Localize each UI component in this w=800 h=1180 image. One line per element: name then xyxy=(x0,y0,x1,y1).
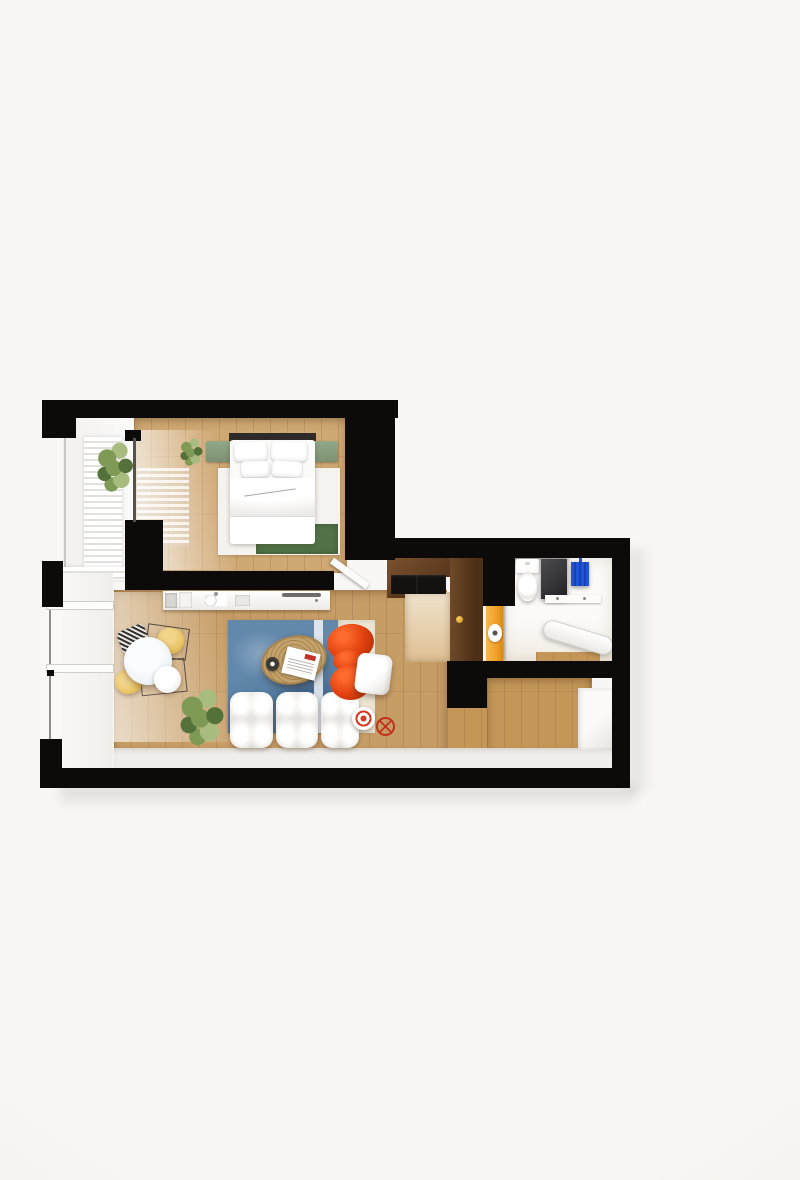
toilet-flush-button xyxy=(525,562,530,565)
wall-left-mid-block xyxy=(42,561,63,607)
shower-panel xyxy=(541,559,567,599)
wall-bottom xyxy=(54,768,630,788)
balcony-glass-line xyxy=(64,418,66,567)
scene-background xyxy=(0,0,800,1180)
hallway-closet xyxy=(578,688,612,750)
bed-foot-section xyxy=(230,516,315,544)
bedroom-door-leaf xyxy=(330,558,370,590)
wall-upper-right xyxy=(393,538,630,558)
blue-towel xyxy=(571,562,589,586)
bedside-bench-right xyxy=(315,441,338,462)
glass-frame-bar-2 xyxy=(46,664,114,673)
glass-hinge-tick xyxy=(47,670,54,676)
kitchen-appliance-mid xyxy=(179,592,192,608)
vanity-faucet-1 xyxy=(556,597,559,600)
wall-top-left-corner xyxy=(42,400,76,438)
toilet-bowl xyxy=(518,572,537,601)
kitchen-sink xyxy=(205,595,227,606)
hallway-floor xyxy=(487,678,592,750)
red-wire-stool xyxy=(376,717,395,736)
bed-duvet xyxy=(230,478,315,516)
balcony-plant xyxy=(94,438,138,496)
kitchen-counter-slot xyxy=(282,593,321,597)
sofa-module-1 xyxy=(230,692,273,748)
walnut-door xyxy=(450,556,483,663)
walnut-door-handle xyxy=(456,616,463,623)
kitchen-cooktop xyxy=(235,595,250,606)
vanity-faucet-2 xyxy=(583,597,586,600)
bedroom-window-line xyxy=(133,438,136,522)
glossy-floor-strip xyxy=(114,748,615,770)
bed-pillow-4 xyxy=(272,460,303,478)
bedroom-plant xyxy=(178,436,206,468)
red-side-table xyxy=(352,707,375,730)
white-chair xyxy=(154,666,181,693)
kitchen-knob xyxy=(315,599,318,602)
bed-pillow-2 xyxy=(271,441,308,461)
kitchen-counter xyxy=(163,591,330,610)
wall-hallway-stub xyxy=(447,661,487,708)
bed-pillow-1 xyxy=(234,441,268,462)
kitchen-faucet xyxy=(214,592,218,596)
magazine-text-lines xyxy=(286,658,314,676)
vanity-shelf xyxy=(545,595,601,603)
living-room-plant xyxy=(176,684,230,750)
wall-bathroom-left xyxy=(483,556,515,606)
built-in-appliances xyxy=(391,575,446,594)
coffee-cup xyxy=(266,657,279,671)
bedroom-wardrobe-wall-mass xyxy=(345,414,395,560)
plan-drop-shadow-bottom xyxy=(60,786,635,810)
kitchen-appliance-left xyxy=(165,593,177,608)
toilet-paper-roll xyxy=(488,624,502,642)
wall-window-corner-block xyxy=(125,520,163,573)
wall-bottom-left-corner xyxy=(40,739,62,788)
passage-floor xyxy=(447,708,487,750)
bed-pillow-3 xyxy=(241,461,270,478)
wall-hallway-top xyxy=(487,661,630,678)
sofa-module-2 xyxy=(276,692,318,748)
magazine-red-patch xyxy=(304,654,316,662)
plan-drop-shadow-right xyxy=(629,548,653,793)
bedside-bench-left xyxy=(206,441,232,462)
wall-bedroom-living xyxy=(125,571,334,590)
white-ottoman xyxy=(354,652,394,696)
nook-floor xyxy=(405,592,450,662)
